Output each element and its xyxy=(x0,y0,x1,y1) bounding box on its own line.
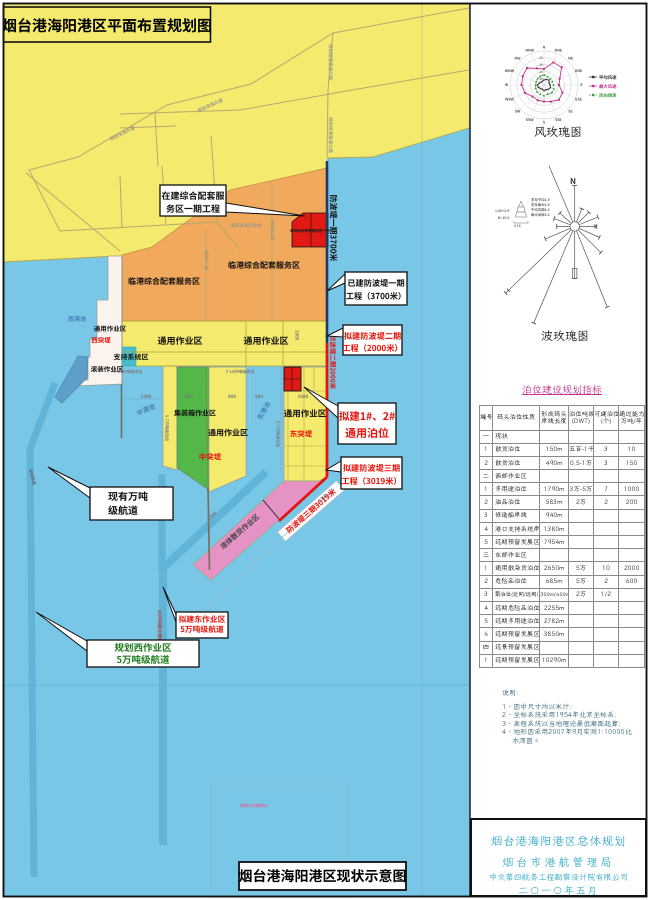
svg-text:E: E xyxy=(580,83,582,88)
svg-text:通用作业区: 通用作业区 xyxy=(243,334,288,347)
svg-text:NNW: NNW xyxy=(525,49,534,54)
svg-text:B=15.0: B=15.0 xyxy=(498,215,509,220)
svg-text:烟台港海阳港区现状示意图: 烟台港海阳港区现状示意图 xyxy=(239,866,407,886)
svg-text:5万吨级航道: 5万吨级航道 xyxy=(180,624,224,635)
svg-text:15: 15 xyxy=(539,69,543,74)
svg-text:东突堤: 东突堤 xyxy=(290,429,313,440)
svg-text:WSW: WSW xyxy=(505,98,515,103)
svg-text:烟台港海阳港区平面布置规划图: 烟台港海阳港区平面布置规划图 xyxy=(2,15,212,36)
svg-text:级航道: 级航道 xyxy=(108,502,138,517)
svg-text:WNW: WNW xyxy=(505,69,515,74)
svg-text:规划疏港高速公路: 规划疏港高速公路 xyxy=(327,117,333,153)
svg-text:平均风速: 平均风速 xyxy=(599,75,617,81)
svg-text:20: 20 xyxy=(539,62,543,67)
svg-text:1300: 1300 xyxy=(141,394,152,400)
svg-text:波玫瑰图: 波玫瑰图 xyxy=(541,329,589,344)
svg-text:1800: 1800 xyxy=(294,330,300,341)
svg-text:SE: SE xyxy=(568,110,572,115)
svg-text:800: 800 xyxy=(185,394,193,400)
svg-text:N: N xyxy=(570,176,576,187)
svg-text:通用作业区: 通用作业区 xyxy=(208,428,248,439)
svg-text:规划经二路: 规划经二路 xyxy=(269,220,275,240)
svg-text:工程（2000米）: 工程（2000米） xyxy=(342,342,402,354)
svg-text:工程（3019米）: 工程（3019米） xyxy=(341,475,401,487)
svg-text:通用泊位: 通用泊位 xyxy=(345,425,389,441)
svg-text:7-14万吨级泊位: 7-14万吨级泊位 xyxy=(114,369,143,375)
svg-text:临港综合配套服务区: 临港综合配套服务区 xyxy=(228,260,300,271)
svg-text:5万吨级航道: 5万吨级航道 xyxy=(116,652,170,666)
svg-text:工程（3700米）: 工程（3700米） xyxy=(346,290,406,302)
svg-text:5-7万吨级泊位: 5-7万吨级泊位 xyxy=(275,421,281,447)
svg-text:SSW: SSW xyxy=(526,118,534,123)
svg-text:规划经一路: 规划经一路 xyxy=(203,250,209,270)
svg-text:务区一期工程: 务区一期工程 xyxy=(166,202,220,215)
svg-text:通用作业区: 通用作业区 xyxy=(94,323,127,333)
svg-text:拟建工作船码头: 拟建工作船码头 xyxy=(240,803,268,809)
svg-text:NNE: NNE xyxy=(555,49,563,54)
svg-text:泊位建设规划指标: 泊位建设规划指标 xyxy=(522,383,602,396)
svg-text:NE: NE xyxy=(568,57,573,62)
svg-text:临港综合配套服务区: 临港综合配套服务区 xyxy=(128,276,200,287)
svg-text:在建综合配套服: 在建综合配套服 xyxy=(161,189,224,202)
svg-text:NW: NW xyxy=(514,57,521,62)
svg-text:通用作业区: 通用作业区 xyxy=(157,334,202,347)
svg-text:现有万吨: 现有万吨 xyxy=(108,488,148,503)
svg-text:风向频率: 风向频率 xyxy=(599,93,617,99)
svg-text:拟建防波堤二期: 拟建防波堤二期 xyxy=(344,330,401,342)
svg-text:900: 900 xyxy=(228,394,236,400)
svg-text:拟建1#、2#: 拟建1#、2# xyxy=(339,409,395,424)
svg-text:海阳市政府驻地: 海阳市政府驻地 xyxy=(230,223,262,229)
svg-text:西港池: 西港池 xyxy=(68,314,86,323)
svg-text:规划疏港高速公路: 规划疏港高速公路 xyxy=(327,44,333,80)
svg-text:7-14万吨级泊位: 7-14万吨级泊位 xyxy=(226,369,255,375)
svg-text:支持系统区: 支持系统区 xyxy=(114,353,149,363)
svg-text:25: 25 xyxy=(539,55,543,60)
svg-text:临港综合配套服务区一期: 临港综合配套服务区一期 xyxy=(290,228,330,234)
svg-text:ESE: ESE xyxy=(575,98,582,103)
svg-text:900: 900 xyxy=(255,394,263,400)
svg-text:1080: 1080 xyxy=(298,394,309,400)
svg-text:N: N xyxy=(543,46,546,51)
svg-text:风玫瑰图: 风玫瑰图 xyxy=(534,125,582,140)
svg-text:集装箱作业区: 集装箱作业区 xyxy=(174,409,216,419)
svg-text:通用作业区: 通用作业区 xyxy=(284,408,327,420)
svg-text:防波堤一期3700米: 防波堤一期3700米 xyxy=(328,195,339,262)
svg-text:中突堤: 中突堤 xyxy=(199,452,222,463)
svg-text:西突堤: 西突堤 xyxy=(91,335,111,345)
svg-text:W: W xyxy=(505,83,509,88)
svg-text:1.50+2.9: 1.50+2.9 xyxy=(495,208,509,213)
svg-text:SSE: SSE xyxy=(555,118,562,123)
svg-text:已建防波堤一期: 已建防波堤一期 xyxy=(347,277,404,289)
svg-text:ENE: ENE xyxy=(575,69,582,74)
svg-text:拟建防波堤三期: 拟建防波堤三期 xyxy=(343,462,400,474)
svg-text:最大风速: 最大风速 xyxy=(599,84,617,90)
svg-text:5-7万吨级泊位: 5-7万吨级泊位 xyxy=(164,415,170,441)
svg-text:0 15: 0 15 xyxy=(514,223,521,228)
svg-text:防波堤二期2000米: 防波堤二期2000米 xyxy=(329,335,339,390)
svg-text:最大波高5.2: 最大波高5.2 xyxy=(531,212,550,217)
svg-text:10: 10 xyxy=(539,76,543,81)
svg-text:SW: SW xyxy=(515,110,521,115)
